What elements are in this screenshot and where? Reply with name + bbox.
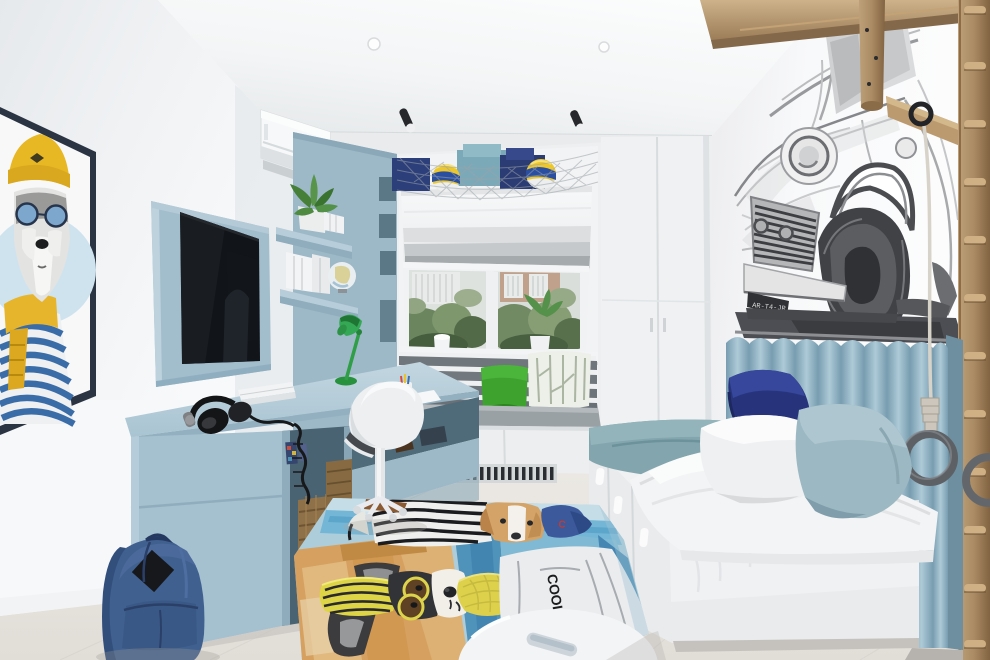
svg-text:C: C bbox=[558, 519, 567, 531]
